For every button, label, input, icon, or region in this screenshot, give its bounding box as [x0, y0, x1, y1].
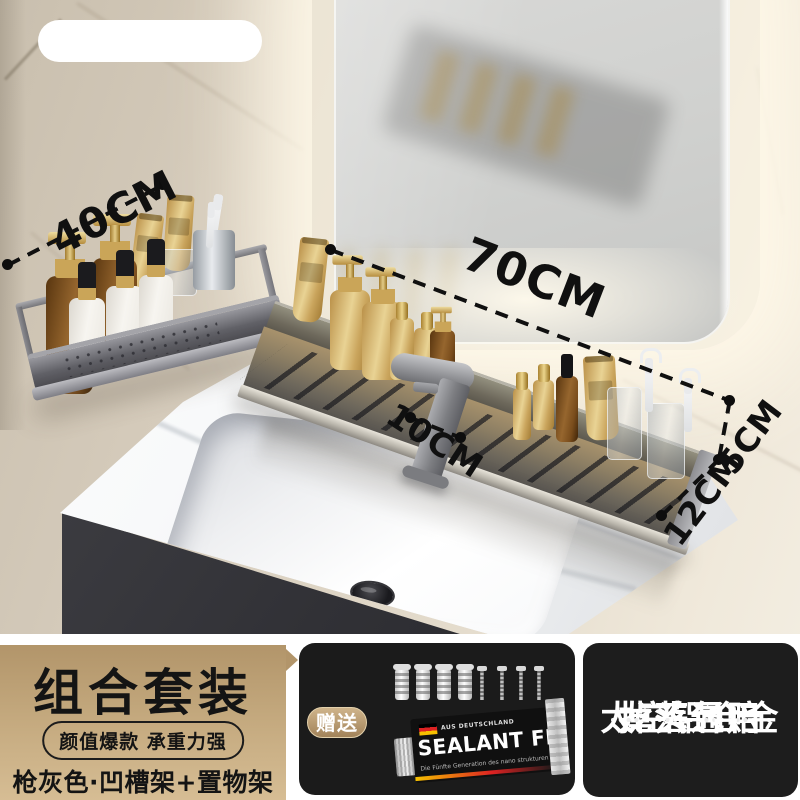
dimension-endpoint — [724, 395, 735, 406]
panel-arrow — [286, 649, 298, 671]
dropper-cap — [538, 364, 550, 382]
combo-set-panel: 组合套装 颜值爆款 承重力强 枪灰色·凹槽架+置物架 — [0, 645, 286, 800]
wall-anchor — [458, 667, 472, 700]
dropper-bottle — [533, 380, 554, 430]
screw — [537, 669, 541, 700]
serum-bottle-amber — [556, 376, 578, 442]
screw — [480, 669, 484, 700]
glass-cup — [647, 403, 685, 479]
gift-panel: 赠送 AUS DEUTSCHLAND SEALANT FIX Die Fünft… — [299, 643, 575, 795]
combo-set-title: 组合套装 — [0, 653, 286, 725]
dimension-endpoint — [2, 259, 13, 270]
screw — [500, 669, 504, 700]
combo-set-badge: 颜值爆款 承重力强 — [42, 721, 244, 760]
dropper-cap — [421, 312, 433, 330]
faucet-handle — [413, 382, 439, 395]
combo-set-subtitle: 枪灰色·凹槽架+置物架 — [0, 763, 286, 799]
wall-anchor — [416, 667, 430, 700]
glass-cup — [607, 387, 642, 460]
german-flag-icon — [419, 723, 438, 736]
bottle-cap — [561, 354, 573, 378]
dimension-label-5cm: 5CM — [707, 387, 794, 487]
sealant-tube: AUS DEUTSCHLAND SEALANT FIX Die Fünfte G… — [392, 699, 577, 798]
product-image: 40CM 70CM 10CM 12CM 5CM 组合套装 颜值爆款 承重力强 枪… — [0, 0, 800, 800]
dropper-bottle — [513, 388, 531, 440]
sealant-tube-label: AUS DEUTSCHLAND SEALANT FIX Die Fünfte G… — [410, 707, 555, 783]
wall-anchor — [437, 667, 451, 700]
blank-label-pill — [38, 20, 262, 62]
dimension-endpoint — [325, 244, 336, 255]
feature-line-3: 太空铝合金 — [601, 699, 781, 740]
feature-panel: 龙头通用 掉落包赔 太空铝合金 — [583, 643, 798, 797]
wall-anchor — [395, 667, 409, 700]
gift-badge: 赠送 — [307, 707, 367, 738]
dropper-cap — [516, 372, 528, 390]
screw — [519, 669, 523, 700]
pump-dispenser — [434, 307, 451, 332]
wall-vein — [756, 67, 784, 215]
dropper-cap — [396, 302, 408, 320]
